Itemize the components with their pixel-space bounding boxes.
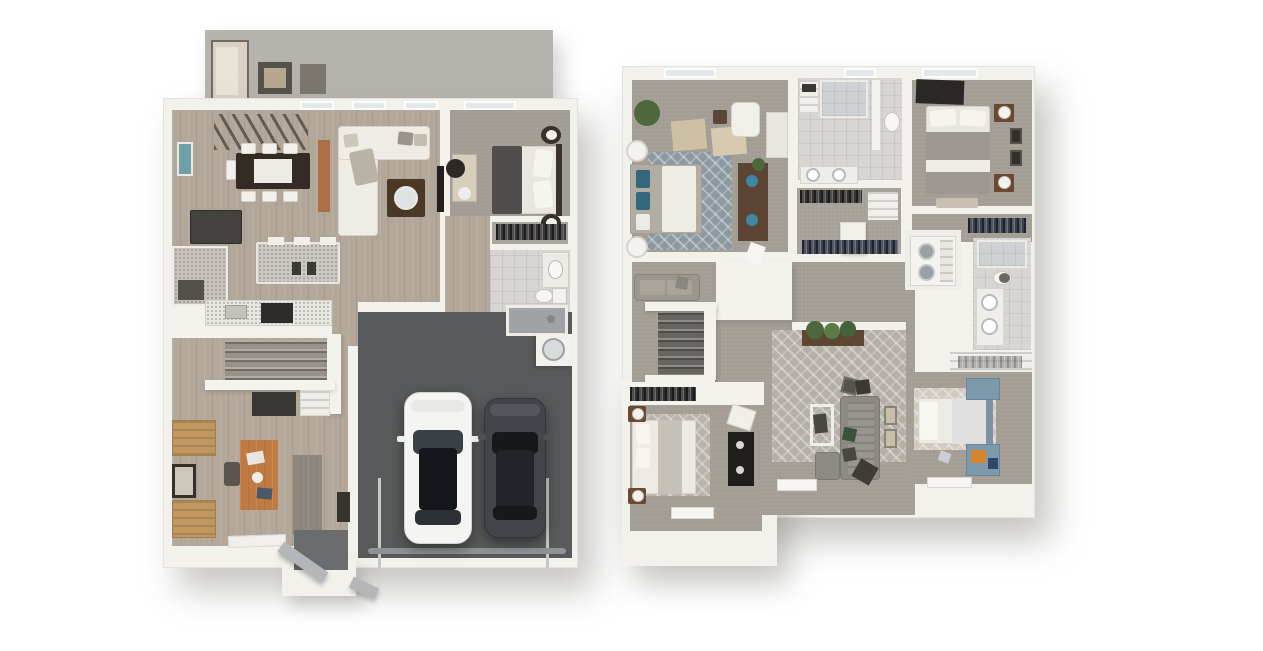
master-bench xyxy=(766,112,788,158)
loft-ottoman xyxy=(815,452,840,480)
window2-master xyxy=(664,68,716,78)
bedroom2-art-2 xyxy=(1010,150,1022,166)
loft-desk-chair xyxy=(813,413,828,433)
walkin-closet-rod-top xyxy=(800,190,862,203)
bedroom4-cabinet-top xyxy=(966,378,1000,400)
master-dresser-plant xyxy=(752,158,765,171)
mbath-wc-wall xyxy=(872,80,880,150)
walkin-closet-shelf xyxy=(868,192,898,220)
loft-plant-3 xyxy=(840,321,856,337)
master-armchair xyxy=(731,102,760,137)
master-mat-1 xyxy=(671,119,707,152)
bedroom2-closet-clothes xyxy=(968,218,1026,233)
bedroom2-art-1 xyxy=(1010,128,1022,144)
bedroom2-bench xyxy=(936,198,978,208)
loft-window-sill xyxy=(777,479,817,491)
bedroom3-dresser-knob-2 xyxy=(736,466,744,474)
bedroom3-dresser xyxy=(728,432,754,486)
bedroom3-dresser-knob-1 xyxy=(736,441,744,449)
mbath-toilet xyxy=(884,112,900,132)
hall-loveseat-cushion-1 xyxy=(640,280,665,295)
master-side-table xyxy=(713,110,727,124)
hall-loveseat-pillow xyxy=(675,276,689,290)
bedroom3-pillow-1 xyxy=(635,423,651,444)
laundry-dryer-door xyxy=(918,264,935,281)
bedroom3-blanket xyxy=(658,420,682,494)
bedroom3-lamp-1 xyxy=(632,408,644,420)
bedroom2-pillow-2 xyxy=(959,109,986,127)
mbath-sink-2 xyxy=(832,168,846,182)
loft-plant-1 xyxy=(806,321,824,339)
bedroom4-footboard xyxy=(986,398,993,444)
mbath-sink-1 xyxy=(806,168,820,182)
bedroom2-runner xyxy=(926,160,990,172)
master-dresser-decor-2 xyxy=(746,214,758,226)
master-duvet xyxy=(662,166,696,232)
loft-art-leaning-2 xyxy=(855,379,871,395)
window2-bedroom2 xyxy=(922,68,978,78)
laundry-shelf xyxy=(940,240,953,282)
bedroom3-pillow-2 xyxy=(635,447,651,468)
loft-plant-2 xyxy=(824,323,840,339)
master-pillow-teal-1 xyxy=(636,170,650,188)
bedroom4-drawer-navy xyxy=(988,458,998,469)
loft-pillow-green xyxy=(842,427,857,442)
bedroom4-window-sill xyxy=(927,477,972,488)
bedroom3-closet-clothes xyxy=(630,387,696,401)
stair2-closet-walls xyxy=(716,262,792,320)
linen-baskets xyxy=(958,356,1022,368)
loft-art-right-2 xyxy=(884,429,897,448)
bath2-sink-1 xyxy=(981,294,998,311)
bedroom2-lamp-2 xyxy=(998,176,1011,189)
master-pillow-teal-2 xyxy=(636,192,650,210)
laundry-washer-door xyxy=(918,243,935,260)
stairs2-right-wall xyxy=(704,304,716,380)
window2-bath xyxy=(844,68,876,78)
loft-pillow-dark xyxy=(842,447,857,462)
bedroom2-lamp-1 xyxy=(998,106,1011,119)
mbath-shower xyxy=(820,80,868,118)
bedroom2-pillow-1 xyxy=(929,109,956,127)
walkin-closet-rod-bottom xyxy=(802,240,898,254)
bath2-shower xyxy=(977,240,1027,268)
floor-plan-rendering xyxy=(0,0,1263,651)
bedroom3-lamp-2 xyxy=(632,490,644,502)
stairs2-treads xyxy=(658,311,704,375)
master-plant xyxy=(634,100,660,126)
bedroom3-window-sill xyxy=(671,507,714,519)
bedroom4-blanket xyxy=(952,398,990,444)
master-lamp-bottom xyxy=(626,236,648,258)
bedroom4-pillow xyxy=(920,402,938,440)
mbath-closet-clothes xyxy=(802,84,816,92)
bedroom2-dresser xyxy=(916,79,965,105)
bath2-toilet-lid xyxy=(999,273,1010,283)
bath2-sink-2 xyxy=(981,318,998,335)
second-floor-plan xyxy=(0,0,1263,651)
master-pillow-white xyxy=(636,214,650,230)
bedroom4-drawer-orange xyxy=(971,450,986,463)
loft-art-right-1 xyxy=(884,406,897,425)
master-lamp-top xyxy=(626,140,648,162)
master-dresser-decor-1 xyxy=(746,175,758,187)
